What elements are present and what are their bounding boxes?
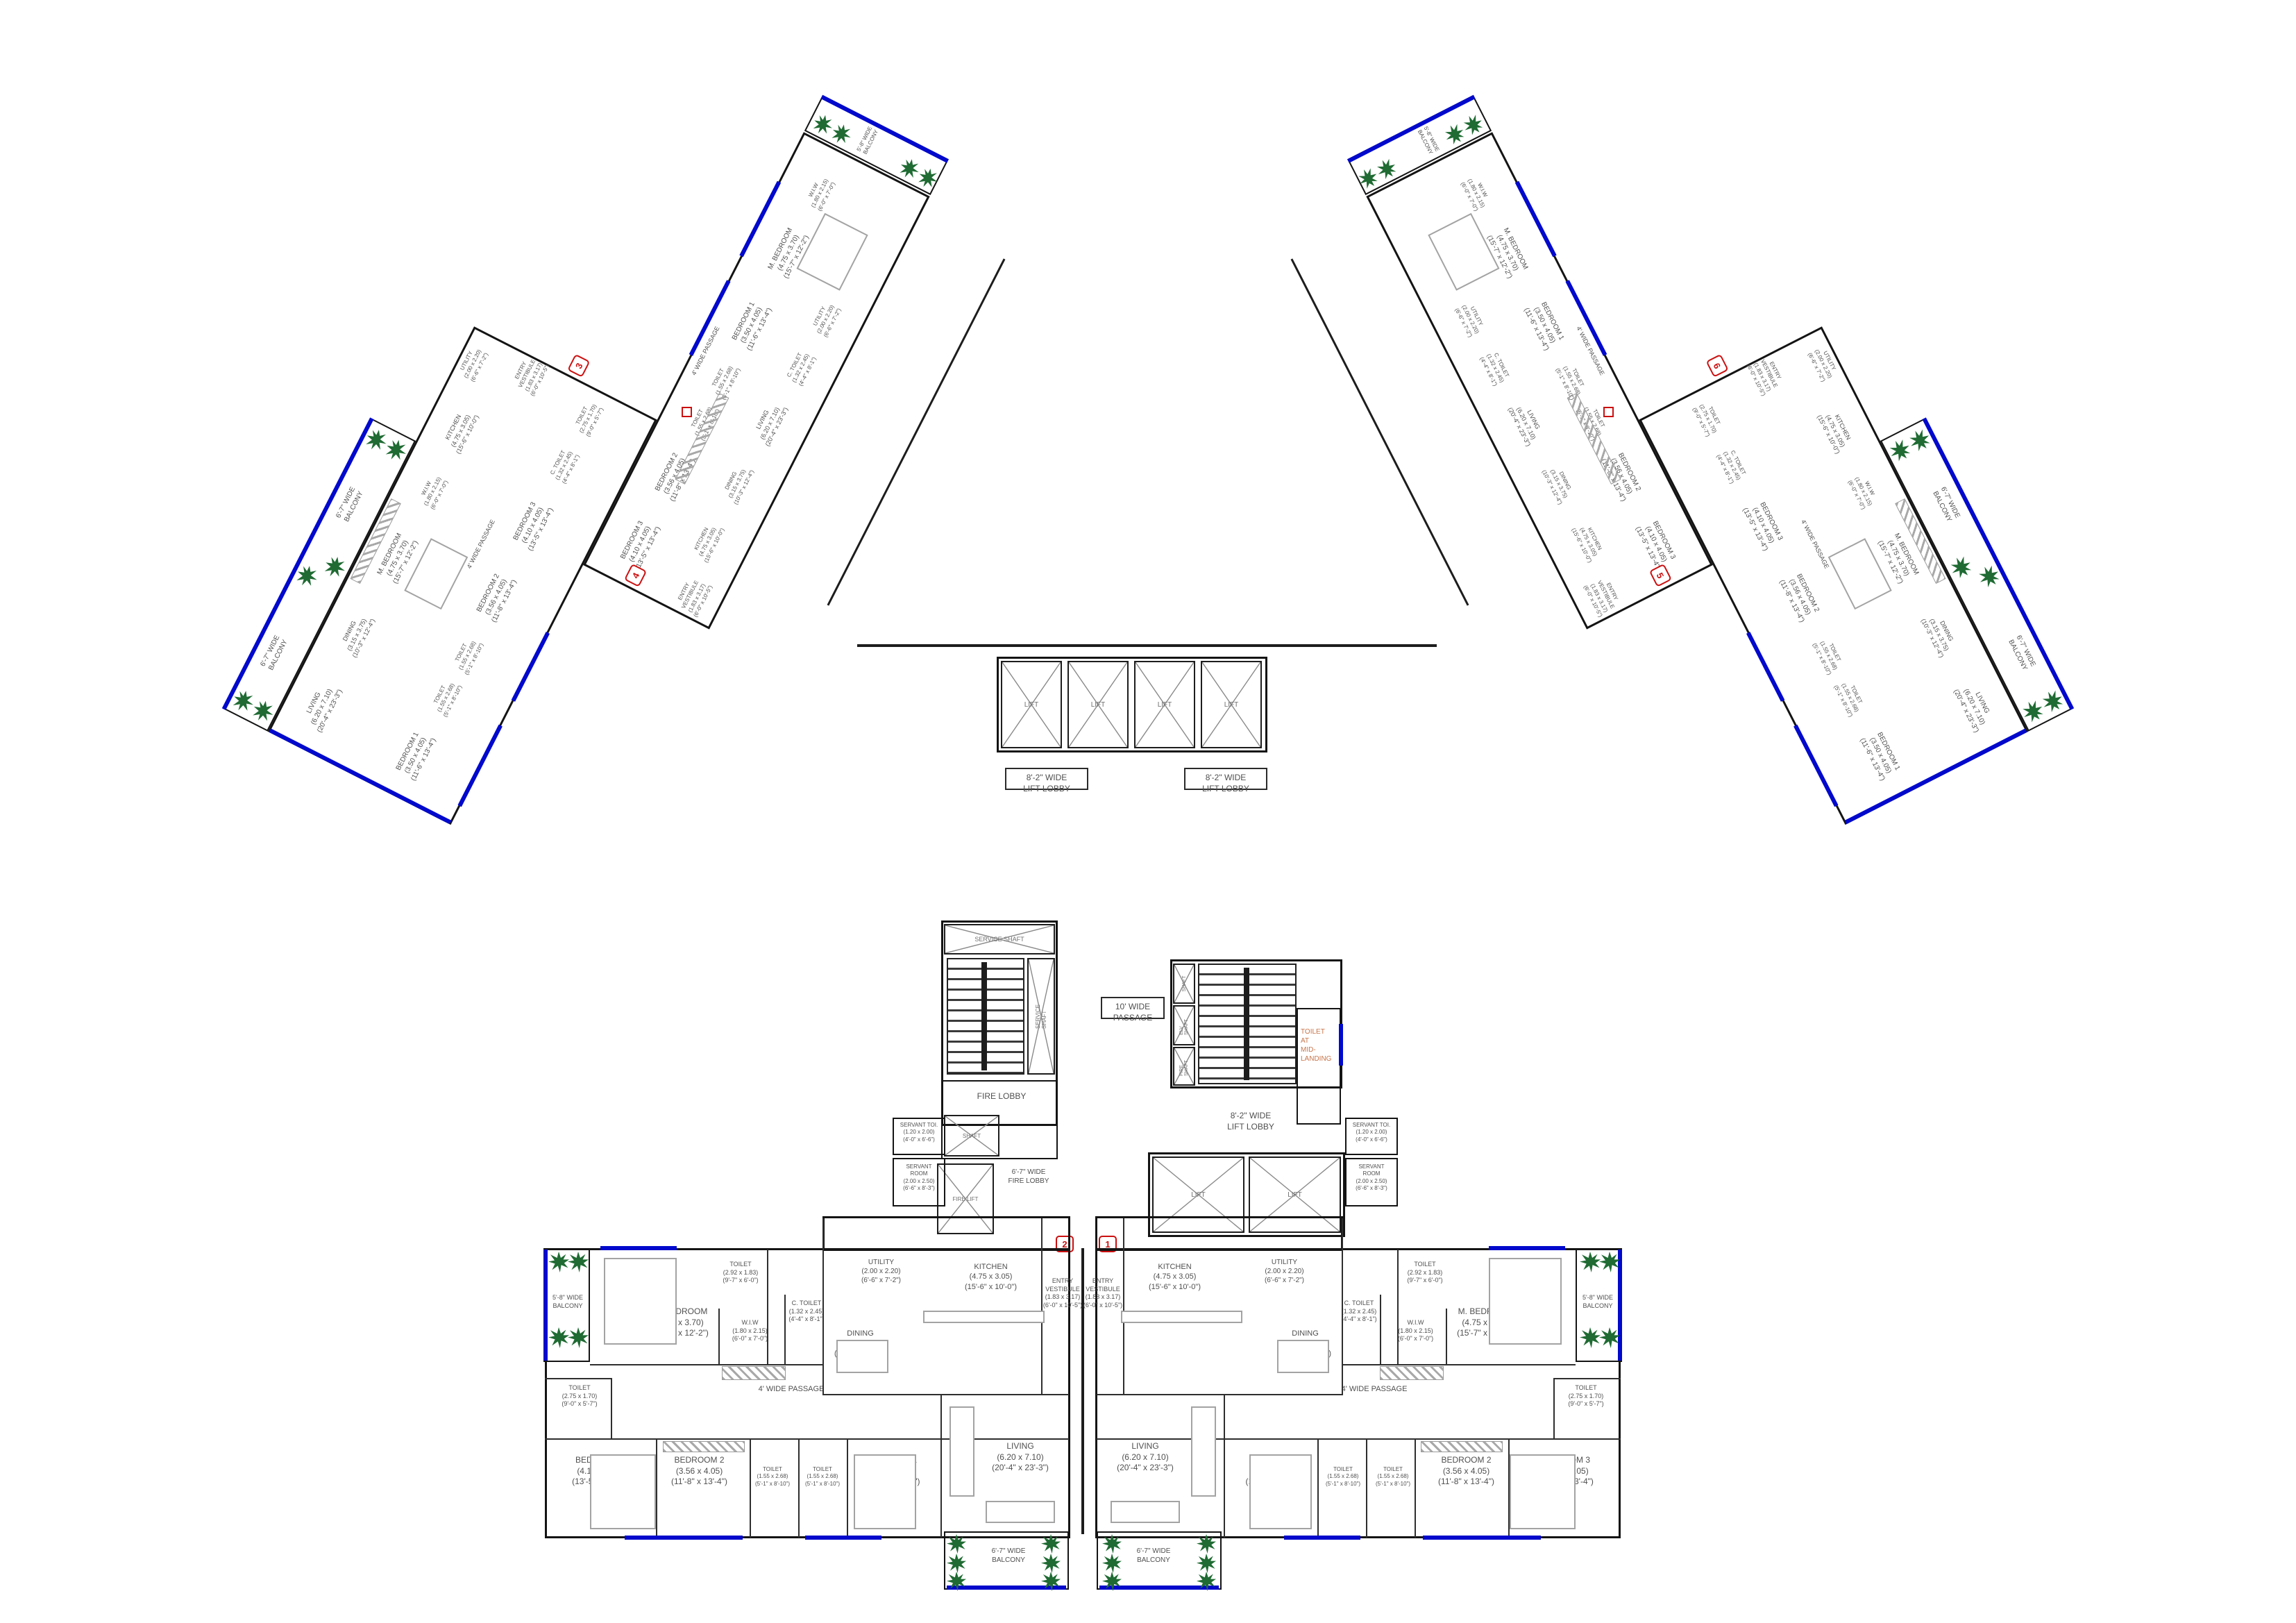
label-line: (1.83 x 3.17): [1079, 1293, 1127, 1302]
label-line: SERVANT TOI.: [1347, 1122, 1396, 1129]
room-label-toilet3: TOILET(2.75 x 1.70)(9'-0" x 5'-7"): [548, 1384, 611, 1409]
shaft: SHAFT: [944, 1115, 999, 1157]
label-line: LIFT LOBBY: [1190, 784, 1261, 795]
lift-shaft-label: ELV SHAFT: [1165, 1016, 1203, 1035]
unit-tag: 3: [567, 354, 590, 378]
label-line: (9'-7" x 6'-0"): [1394, 1277, 1456, 1285]
label-line: (1.32 x 2.45): [1331, 1308, 1387, 1316]
sofa: [949, 1406, 974, 1497]
label-line: (1.55 x 2.68): [1369, 1473, 1417, 1480]
label-line: 6'-7" WIDE: [997, 1168, 1061, 1177]
room-label-c-toilet: C. TOILET(1.32 x 2.45)(4'-4" x 8'-1"): [1331, 1300, 1387, 1325]
label-line: (2.75 x 1.70): [548, 1393, 611, 1401]
label-line: (2.00 x 2.20): [1251, 1267, 1317, 1276]
label-line: W.I.W: [720, 1319, 779, 1327]
label-line: (3.56 x 4.05): [1426, 1466, 1506, 1477]
window: [625, 1536, 743, 1540]
label-line: BEDROOM 2: [1426, 1455, 1506, 1466]
label-line: FIRE LOBBY: [997, 1177, 1061, 1186]
lift-lobby-label-left: 8'-2" WIDELIFT LOBBY: [1005, 768, 1088, 790]
servant-room-left-label: SERVANTROOM(2.00 x 2.50)(6'-6" x 8'-3"): [894, 1163, 944, 1193]
wall: [847, 1438, 848, 1538]
wall: [1342, 1218, 1343, 1395]
shaft-ac: SHAFT: [1173, 964, 1195, 1004]
label-line: TOILET: [1369, 1466, 1417, 1473]
label-line: (20'-4" x 23'-3"): [979, 1463, 1062, 1474]
wall: [1343, 1364, 1576, 1365]
label-line: (6.20 x 7.10): [979, 1452, 1062, 1463]
label-line: (5'-1" x 8'-10"): [1369, 1481, 1417, 1488]
wall: [1224, 1395, 1225, 1538]
label-line: PASSAGE: [1107, 1013, 1158, 1024]
wall: [1041, 1218, 1043, 1394]
label-line: C. TOILET: [779, 1300, 834, 1308]
dining-table: [836, 1340, 888, 1373]
window: [1339, 1024, 1343, 1066]
wardrobe: [722, 1366, 786, 1380]
sofa: [1191, 1406, 1216, 1497]
label-line: (1.32 x 2.45): [779, 1308, 834, 1316]
label-line: (9'-7" x 6'-0"): [709, 1277, 772, 1285]
wall: [590, 1364, 822, 1365]
label-line: KITCHEN: [1135, 1262, 1215, 1272]
room-label-bedroom2: BEDROOM 2(3.56 x 4.05)(11'-8" x 13'-4"): [1426, 1455, 1506, 1489]
label-line: (15'-6" x 10'-0"): [951, 1282, 1031, 1292]
wall: [822, 1218, 824, 1395]
wall: [611, 1378, 612, 1438]
mid-landing-toilet: [1297, 1008, 1341, 1125]
label-line: UTILITY: [848, 1258, 914, 1267]
label-line: AT: [1301, 1036, 1340, 1045]
label-line: (5'-1" x 8'-10"): [798, 1481, 847, 1488]
wall: [750, 1438, 751, 1538]
label-line: KITCHEN: [951, 1262, 1031, 1272]
wall: [1097, 1438, 1621, 1440]
label-line: (4.75 x 3.05): [951, 1272, 1031, 1281]
label-line: FIRE LOBBY: [963, 1091, 1040, 1102]
label-line: TOILET: [748, 1466, 797, 1473]
label-line: (2.00 x 2.50): [894, 1178, 944, 1185]
room-label-passage: 4' WIDE PASSAGE: [736, 1384, 847, 1395]
label-line: (9'-0" x 5'-7"): [548, 1400, 611, 1408]
label-line: TOILET: [1301, 1027, 1340, 1036]
lift-lobby-label-right: 8'-2" WIDELIFT LOBBY: [1184, 768, 1267, 790]
unit1-kitchen-strip: [1095, 1216, 1343, 1251]
room-label-bedroom2: BEDROOM 2(3.56 x 4.05)(11'-8" x 13'-4"): [659, 1455, 739, 1489]
wall: [1123, 1218, 1124, 1394]
lift-shaft-label: LIFT: [1136, 662, 1194, 747]
label-line: TOILET: [1555, 1384, 1617, 1393]
label-line: C. TOILET: [1331, 1300, 1387, 1308]
label-line: LIFT LOBBY: [1209, 1122, 1292, 1133]
label-line: LIFT LOBBY: [1011, 784, 1082, 795]
label-line: LIVING: [979, 1441, 1062, 1452]
label-line: UTILITY: [1251, 1258, 1317, 1267]
room-label-toilet-master: TOILET(2.92 x 1.83)(9'-7" x 6'-0"): [1394, 1261, 1456, 1286]
kitchen-counter: [1121, 1311, 1242, 1323]
window: [600, 1246, 677, 1250]
label-line: (6'-6" x 8'-3"): [1347, 1185, 1396, 1192]
label-line: BALCONY: [1122, 1556, 1185, 1565]
label-line: 8'-2" WIDE: [1011, 773, 1082, 784]
wall: [1366, 1438, 1367, 1538]
label-line: SERVANT: [1347, 1163, 1396, 1170]
service-shaft: SERVICE SHAFT: [944, 924, 1055, 955]
bed: [1249, 1454, 1312, 1529]
label-line: VESTIBULE: [1079, 1286, 1127, 1294]
room-label-kitchen: KITCHEN(4.75 x 3.05)(15'-6" x 10'-0"): [1135, 1262, 1215, 1293]
label-line: (6'-0" x 7'-0"): [720, 1335, 779, 1343]
wall: [1415, 1438, 1416, 1538]
label-line: TOILET: [798, 1466, 847, 1473]
lift-shaft-label: LIFT: [1002, 662, 1061, 747]
lift-shaft-label: SERVICE SHAFT: [984, 1004, 1098, 1029]
label-line: (1.55 x 2.68): [1319, 1473, 1367, 1480]
wall: [822, 1394, 1069, 1395]
room-label-wiw: W.I.W(1.80 x 2.15)(6'-0" x 7'-0"): [1386, 1319, 1445, 1344]
room-label-toilet-master: TOILET(2.92 x 1.83)(9'-7" x 6'-0"): [709, 1261, 772, 1286]
label-line: (3.56 x 4.05): [659, 1466, 739, 1477]
bed: [604, 1258, 677, 1345]
room-label-toilet3: TOILET(2.75 x 1.70)(9'-0" x 5'-7"): [1555, 1384, 1617, 1409]
wall: [940, 1395, 942, 1538]
label-line: (4'-0" x 6'-6"): [1347, 1136, 1396, 1143]
label-line: BALCONY: [547, 1302, 589, 1311]
label-line: 8'-2" WIDE: [1190, 773, 1261, 784]
label-line: (6.20 x 7.10): [1104, 1452, 1187, 1463]
label-line: (6'-0" x 7'-0"): [1386, 1335, 1445, 1343]
label-line: (1.80 x 2.15): [1386, 1327, 1445, 1336]
lift-shaft-label: SHAFT: [1165, 974, 1203, 993]
corridor-top-wall: [857, 644, 1437, 647]
label-line: (6'-6" x 7'-2"): [1251, 1276, 1317, 1285]
room-label-toilet-a: TOILET(1.55 x 2.68)(5'-1" x 8'-10"): [748, 1466, 797, 1488]
label-line: TOILET: [709, 1261, 772, 1269]
label-line: TOILET: [1394, 1261, 1456, 1269]
room-label-wiw: W.I.W(1.80 x 2.15)(6'-0" x 7'-0"): [720, 1319, 779, 1344]
window: [1489, 1246, 1565, 1250]
shaft-fire: FIRE SHAFT: [1173, 1047, 1195, 1086]
room-label-toilet-b: TOILET(1.55 x 2.68)(5'-1" x 8'-10"): [1319, 1466, 1367, 1488]
label-line: W.I.W: [1386, 1319, 1445, 1327]
wall: [1380, 1295, 1381, 1364]
meter-icon-right: [1603, 407, 1614, 417]
bed: [1510, 1454, 1576, 1529]
label-line: TOILET: [548, 1384, 611, 1393]
label-line: MID-: [1301, 1045, 1340, 1054]
label-line: ENTRY: [1079, 1277, 1127, 1286]
wardrobe: [663, 1441, 745, 1452]
label-line: BEDROOM 2: [659, 1455, 739, 1466]
wall: [1553, 1378, 1555, 1438]
label-line: (1.20 x 2.00): [894, 1129, 944, 1136]
label-line: (2.92 x 1.83): [1394, 1269, 1456, 1277]
label-line: (1.20 x 2.00): [1347, 1129, 1396, 1136]
label-line: (6'-0" x 10'-5"): [1079, 1302, 1127, 1310]
room-label-toilet-a: TOILET(1.55 x 2.68)(5'-1" x 8'-10"): [1369, 1466, 1417, 1488]
wall: [784, 1295, 786, 1364]
bed: [590, 1454, 656, 1529]
room-label-utility: UTILITY(2.00 x 2.20)(6'-6" x 7'-2"): [848, 1258, 914, 1286]
lift-shaft-label: LIFT: [1202, 662, 1260, 747]
servant-toilet-left-label: SERVANT TOI.(1.20 x 2.00)(4'-0" x 6'-6"): [894, 1122, 944, 1144]
label-line: (15'-6" x 10'-0"): [1135, 1282, 1215, 1292]
label-line: (1.80 x 2.15): [720, 1327, 779, 1336]
lift-shaft-label: SHAFT: [945, 1116, 998, 1155]
wall: [1097, 1394, 1343, 1395]
wall: [1555, 1378, 1621, 1379]
wardrobe: [1421, 1441, 1503, 1452]
room-label-utility: UTILITY(2.00 x 2.20)(6'-6" x 7'-2"): [1251, 1258, 1317, 1286]
sofa: [1111, 1501, 1180, 1523]
servant-toilet-right-label: SERVANT TOI.(1.20 x 2.00)(4'-0" x 6'-6"): [1347, 1122, 1396, 1144]
wardrobe: [1380, 1366, 1444, 1380]
label-line: (4'-4" x 8'-1"): [1331, 1315, 1387, 1324]
fire-lobby-wide-label: 6'-7" WIDEFIRE LOBBY: [997, 1168, 1061, 1186]
wall: [545, 1438, 1069, 1440]
lift-2: LIFT: [1067, 661, 1129, 748]
label-line: (4'-0" x 6'-6"): [894, 1136, 944, 1143]
label-line: (1.55 x 2.68): [798, 1473, 847, 1480]
dining-table: [1277, 1340, 1329, 1373]
label-line: (2.75 x 1.70): [1555, 1393, 1617, 1401]
bed: [854, 1454, 916, 1529]
label-line: 10' WIDE: [1107, 1002, 1158, 1013]
servant-room-right-label: SERVANTROOM(2.00 x 2.50)(6'-6" x 8'-3"): [1347, 1163, 1396, 1193]
window: [1284, 1536, 1360, 1540]
label-line: 8'-2" WIDE: [1209, 1111, 1292, 1122]
label-line: ROOM: [894, 1170, 944, 1177]
label-line: ROOM: [1347, 1170, 1396, 1177]
balcony-side-right-label: 5'-8" WIDEBALCONY: [1577, 1294, 1619, 1311]
label-line: 6'-7" WIDE: [977, 1547, 1040, 1556]
room-label-living: LIVING(6.20 x 7.10)(20'-4" x 23'-3"): [979, 1441, 1062, 1475]
wall: [1397, 1250, 1399, 1364]
meter-icon-left: [682, 407, 692, 417]
label-line: (6'-6" x 8'-3"): [894, 1185, 944, 1192]
wing-right: 6'-7" WIDEBALCONY6'-7" WIDEBALCONYLIVING…: [1342, 0, 2097, 891]
wing-left: 6'-7" WIDEBALCONY6'-7" WIDEBALCONYLIVING…: [199, 0, 954, 891]
label-line: SERVANT: [894, 1163, 944, 1170]
floor-plan-canvas: 6'-7" WIDEBALCONY6'-7" WIDEBALCONYLIVING…: [0, 0, 2296, 1623]
sofa: [986, 1501, 1055, 1523]
label-line: (11'-8" x 13'-4"): [1426, 1477, 1506, 1488]
wall: [1317, 1438, 1319, 1538]
room-label-living: LIVING(6.20 x 7.10)(20'-4" x 23'-3"): [1104, 1441, 1187, 1475]
label-line: TOILET: [1319, 1466, 1367, 1473]
wall: [545, 1378, 611, 1379]
label-line: 4' WIDE PASSAGE: [736, 1384, 847, 1394]
lift-3: LIFT: [1134, 661, 1195, 748]
label-line: BALCONY: [977, 1556, 1040, 1565]
lift-shaft-label: LIFT: [1069, 662, 1127, 747]
unit-tag: 6: [1706, 354, 1729, 378]
room-label-kitchen: KITCHEN(4.75 x 3.05)(15'-6" x 10'-0"): [951, 1262, 1031, 1293]
label-line: (5'-1" x 8'-10"): [748, 1481, 797, 1488]
fire-lobby-label: FIRE LOBBY: [963, 1091, 1040, 1102]
room-label-toilet-b: TOILET(1.55 x 2.68)(5'-1" x 8'-10"): [798, 1466, 847, 1488]
label-line: DINING: [1272, 1329, 1338, 1338]
label-line: (4'-4" x 8'-1"): [779, 1315, 834, 1324]
label-line: (2.00 x 2.50): [1347, 1178, 1396, 1185]
label-line: (2.92 x 1.83): [709, 1269, 772, 1277]
main-passage-label: 10' WIDEPASSAGE: [1101, 997, 1165, 1019]
label-line: 5'-8" WIDE: [547, 1294, 589, 1302]
service-shaft-vertical: SERVICE SHAFT: [1027, 958, 1055, 1075]
label-line: (4.75 x 3.05): [1135, 1272, 1215, 1281]
label-line: SERVANT TOI.: [894, 1122, 944, 1129]
label-line: 5'-8" WIDE: [1577, 1294, 1619, 1302]
window: [805, 1536, 881, 1540]
lift-shaft-label: FIRE SHAFT: [1166, 1057, 1202, 1076]
label-line: LANDING: [1301, 1054, 1340, 1063]
label-line: (6'-6" x 7'-2"): [848, 1276, 914, 1285]
label-line: 6'-7" WIDE: [1122, 1547, 1185, 1556]
lift-1: LIFT: [1001, 661, 1062, 748]
wall: [1446, 1309, 1447, 1364]
label-line: DINING: [827, 1329, 893, 1338]
label-line: (9'-0" x 5'-7"): [1555, 1400, 1617, 1408]
label-line: BALCONY: [1577, 1302, 1619, 1311]
label-line: (2.00 x 2.20): [848, 1267, 914, 1276]
balcony-bottom-left-label: 6'-7" WIDEBALCONY: [977, 1547, 1040, 1565]
lift-4: LIFT: [1201, 661, 1262, 748]
mid-landing-toilet-label: TOILETATMID-LANDING: [1301, 1027, 1340, 1065]
shaft-elv: ELV SHAFT: [1173, 1005, 1195, 1045]
room-label-c-toilet: C. TOILET(1.32 x 2.45)(4'-4" x 8'-1"): [779, 1300, 834, 1325]
label-line: (1.55 x 2.68): [748, 1473, 797, 1480]
bed: [1489, 1258, 1562, 1345]
balcony-side-left-label: 5'-8" WIDEBALCONY: [547, 1294, 589, 1311]
kitchen-counter: [923, 1311, 1045, 1323]
stair-right-divider: [1244, 968, 1249, 1080]
label-line: (5'-1" x 8'-10"): [1319, 1481, 1367, 1488]
room-label-entry-vestibule: ENTRYVESTIBULE(1.83 x 3.17)(6'-0" x 10'-…: [1079, 1277, 1127, 1311]
wall: [718, 1309, 720, 1364]
wall: [798, 1438, 800, 1538]
window: [1423, 1536, 1541, 1540]
wall: [767, 1250, 768, 1364]
label-line: 4' WIDE PASSAGE: [1319, 1384, 1430, 1394]
label-line: LIVING: [1104, 1441, 1187, 1452]
room-label-passage: 4' WIDE PASSAGE: [1319, 1384, 1430, 1395]
lift-lobby-label-lower: 8'-2" WIDELIFT LOBBY: [1209, 1111, 1292, 1133]
label-line: (11'-8" x 13'-4"): [659, 1477, 739, 1488]
lift-shaft-label: SERVICE SHAFT: [945, 925, 1054, 953]
wall: [656, 1438, 657, 1538]
label-line: (20'-4" x 23'-3"): [1104, 1463, 1187, 1474]
balcony-bottom-right-label: 6'-7" WIDEBALCONY: [1122, 1547, 1185, 1565]
unit2-kitchen-strip: [822, 1216, 1070, 1251]
